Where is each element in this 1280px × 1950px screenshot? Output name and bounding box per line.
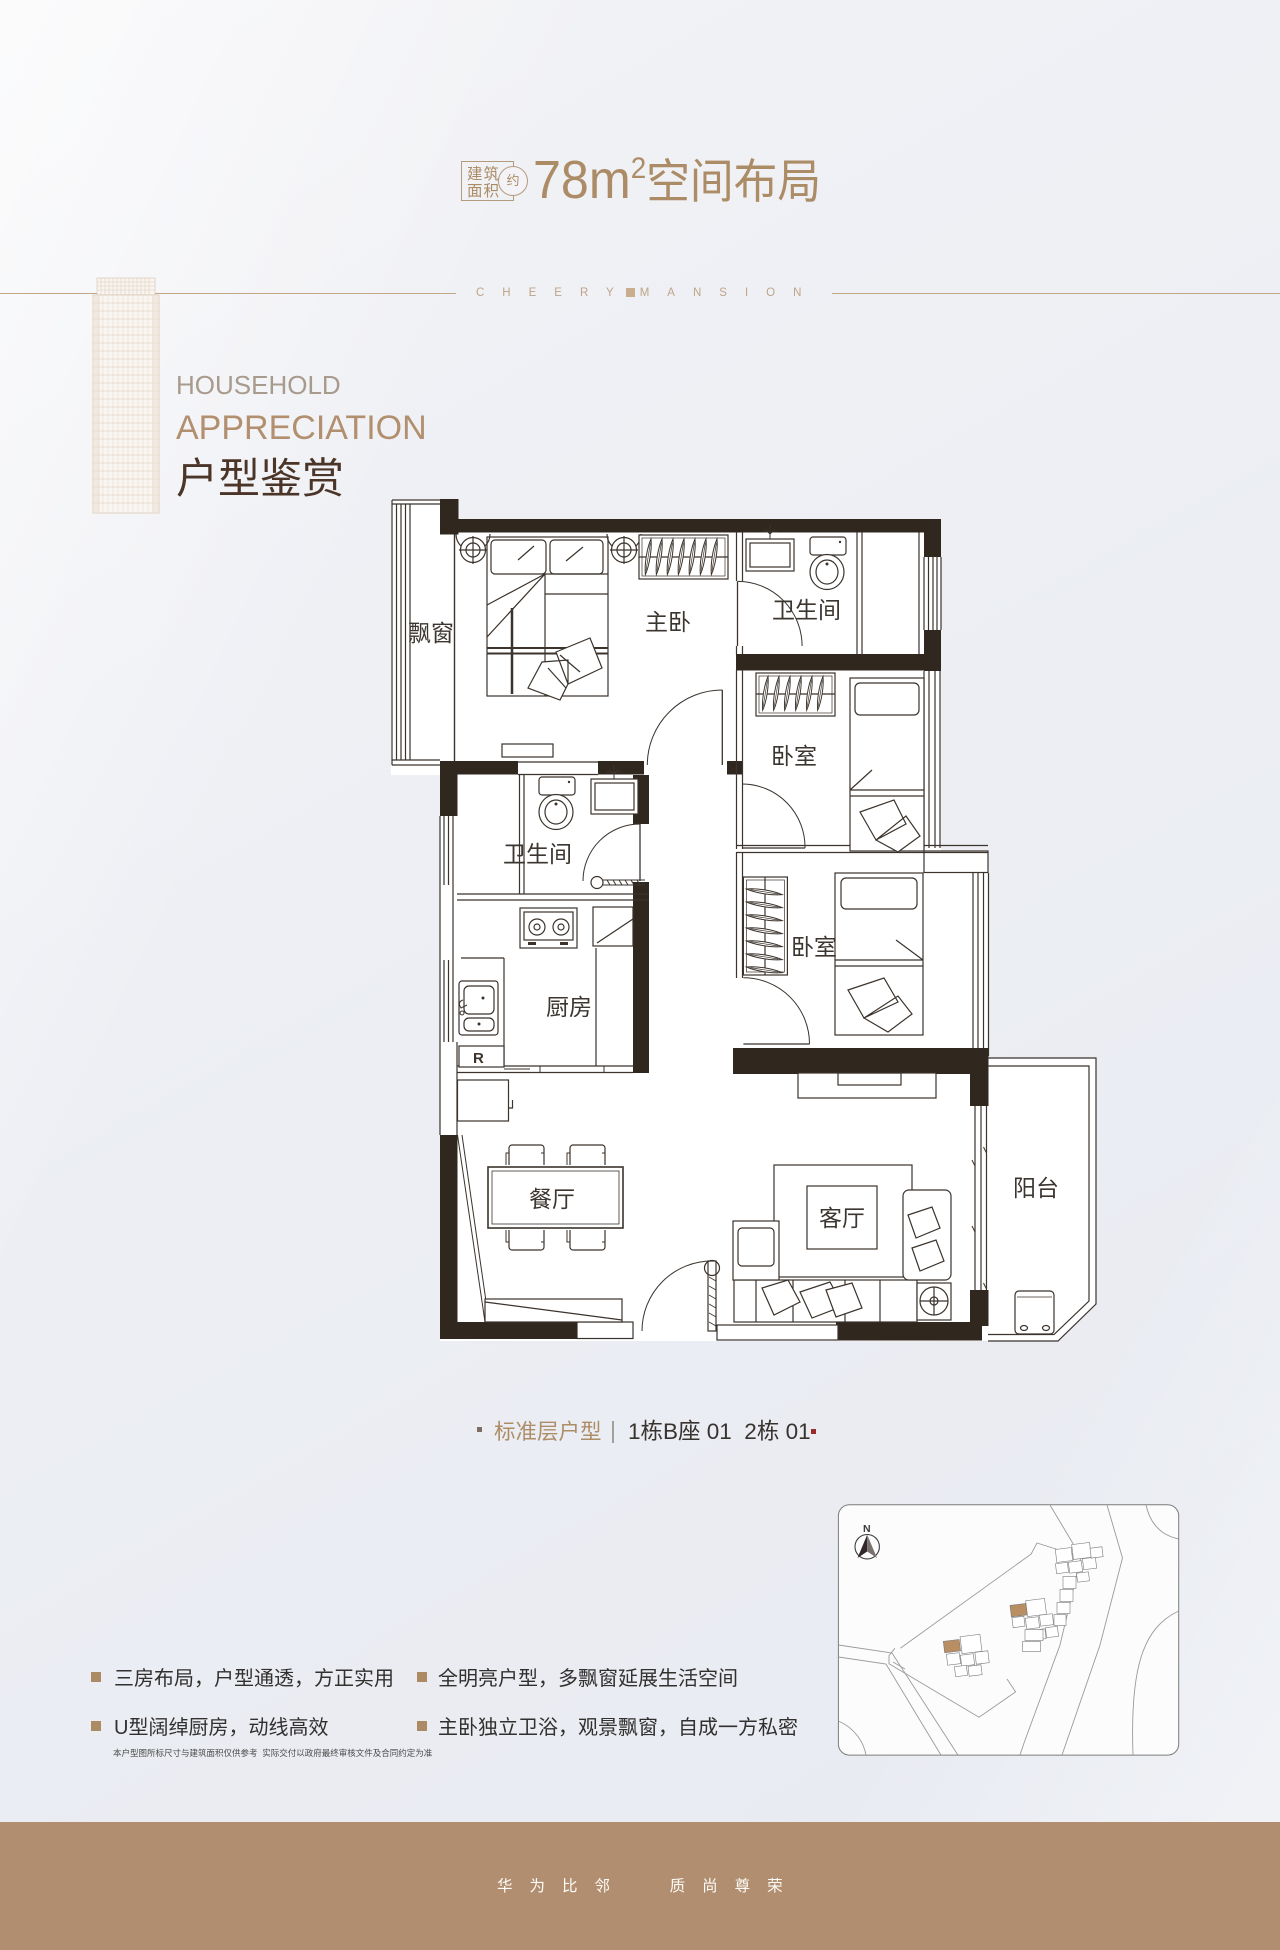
svg-text:飘窗: 飘窗 bbox=[408, 620, 454, 646]
svg-text:客厅: 客厅 bbox=[819, 1205, 865, 1231]
svg-text:卫生间: 卫生间 bbox=[772, 597, 841, 623]
svg-text:餐厅: 餐厅 bbox=[529, 1186, 575, 1212]
svg-text:卧室: 卧室 bbox=[771, 743, 817, 769]
svg-text:R: R bbox=[473, 1050, 484, 1067]
svg-text:主卧: 主卧 bbox=[645, 609, 691, 635]
svg-text:阳台: 阳台 bbox=[1013, 1175, 1059, 1201]
svg-text:厨房: 厨房 bbox=[546, 994, 592, 1020]
svg-text:卧室: 卧室 bbox=[791, 934, 837, 960]
svg-text:卫生间: 卫生间 bbox=[503, 841, 572, 867]
svg-text:N: N bbox=[863, 1523, 871, 1535]
